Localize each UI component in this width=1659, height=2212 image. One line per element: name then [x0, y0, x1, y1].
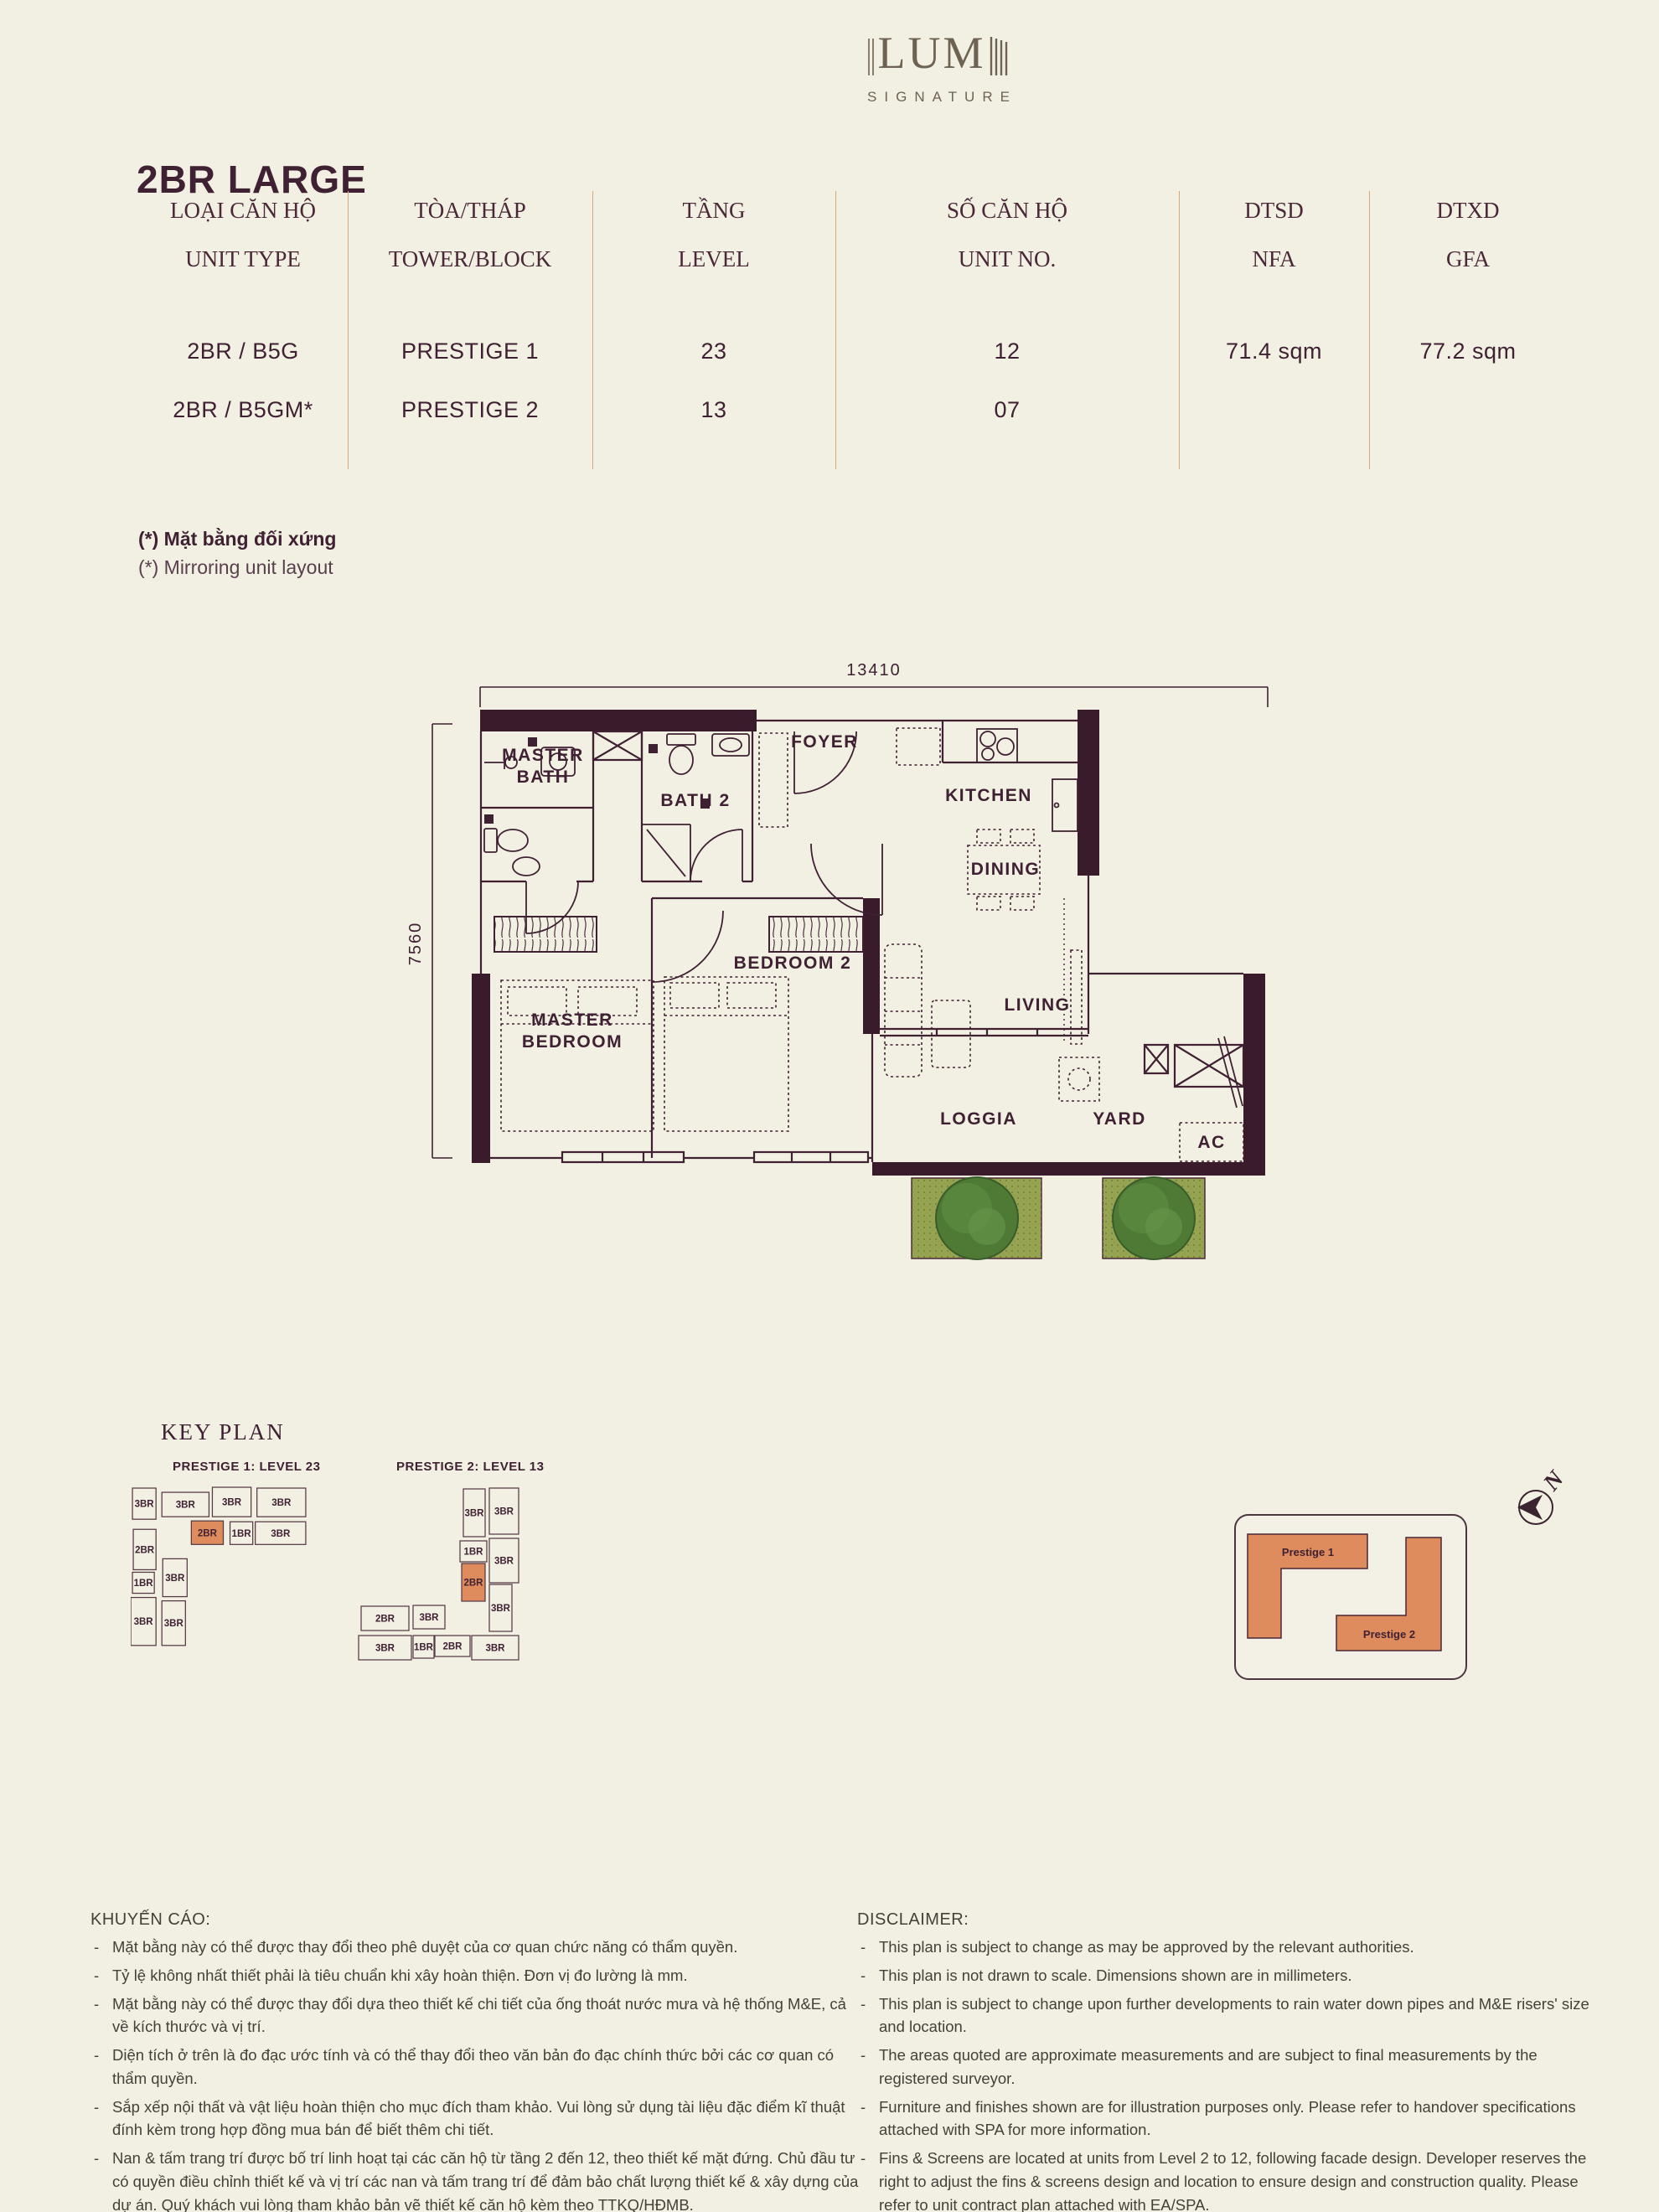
header-en: NFA: [1179, 246, 1369, 272]
planter-right: [1103, 1177, 1205, 1259]
key-plan-unit-label: 2BR: [135, 1545, 155, 1555]
svg-text:BATH: BATH: [517, 767, 570, 787]
column-nfa: DTSD NFA 71.4 sqm: [1179, 191, 1369, 471]
label-living: LIVING: [1004, 995, 1070, 1015]
key-plan-unit-label: 3BR: [464, 1509, 484, 1519]
disclaimer-item: Mặt bằng này có thể được thay đổi dựa th…: [90, 1992, 861, 2039]
cell: 23: [592, 339, 835, 364]
label-yard: YARD: [1093, 1109, 1146, 1129]
wardrobes: [494, 917, 863, 952]
dim-width: 13410: [846, 661, 902, 680]
lumi-logo-i-bars-icon: [989, 37, 1010, 75]
disclaimer-vi-list: Mặt bằng này có thể được thay đổi theo p…: [90, 1935, 861, 2212]
disclaimer-item: This plan is not drawn to scale. Dimensi…: [857, 1964, 1594, 1987]
label-foyer: FOYER: [791, 732, 858, 752]
column-gfa: DTXD GFA 77.2 sqm: [1369, 191, 1567, 471]
header-vi: SỐ CĂN HỘ: [835, 198, 1179, 224]
key-plan-prestige-1: 3BR3BR3BR3BR2BR1BR3BR2BR1BR3BR3BR3BR: [131, 1481, 312, 1683]
cell: 77.2 sqm: [1369, 339, 1567, 364]
lumi-logo: LUM SIGNATURE: [850, 30, 1026, 106]
key-plan-unit-label: 1BR: [463, 1548, 483, 1558]
key-plan-prestige-2: 3BR3BR1BR3BR2BR3BR2BR3BR3BR1BR2BR3BR: [357, 1485, 533, 1665]
header-vi: DTSD: [1179, 198, 1369, 224]
key-plan-unit-label: 2BR: [375, 1615, 395, 1625]
note-en: (*) Mirroring unit layout: [138, 553, 336, 581]
disclaimer-item: Sắp xếp nội thất và vật liệu hoàn thiện …: [90, 2096, 861, 2142]
key-plan-unit-label: 3BR: [494, 1557, 514, 1567]
floorplan-sheet: LUM SIGNATURE 2BR LARGE LOẠI CĂN HỘ UNIT…: [0, 0, 1659, 2212]
header-en: GFA: [1369, 246, 1567, 272]
header-vi: LOẠI CĂN HỘ: [138, 198, 348, 224]
dim-height: 7560: [406, 922, 425, 966]
disclaimer-en: DISCLAIMER: This plan is subject to chan…: [857, 1907, 1594, 2212]
svg-text:BEDROOM: BEDROOM: [522, 1032, 623, 1052]
key-plan-unit-label: 1BR: [414, 1643, 434, 1653]
key-plan-unit-label: 1BR: [232, 1529, 252, 1539]
shaft-boxes: [593, 731, 1243, 1087]
disclaimer-item: Nan & tấm trang trí được bố trí linh hoạ…: [90, 2147, 861, 2212]
key-plan-unit-label: 3BR: [419, 1613, 439, 1623]
lumi-logo-word: LUM: [850, 30, 1026, 75]
disclaimer-item: This plan is subject to change as may be…: [857, 1935, 1594, 1959]
disclaimer-item: Fins & Screens are located at units from…: [857, 2147, 1594, 2212]
column-unit-type: LOẠI CĂN HỘ UNIT TYPE 2BR / B5G 2BR / B5…: [138, 191, 348, 471]
site-label-prestige-2: Prestige 2: [1363, 1628, 1415, 1641]
cell: PRESTIGE 1: [348, 339, 592, 364]
column-level: TẦNG LEVEL 23 13: [592, 191, 835, 471]
logo-tagline: SIGNATURE: [850, 89, 1026, 106]
mirroring-note: (*) Mặt bằng đối xứng (*) Mirroring unit…: [138, 525, 336, 581]
label-master-bedroom: MASTER: [531, 1010, 613, 1030]
disclaimer-item: The areas quoted are approximate measure…: [857, 2044, 1594, 2091]
unit-info-table: LOẠI CĂN HỘ UNIT TYPE 2BR / B5G 2BR / B5…: [138, 191, 1567, 471]
column-tower: TÒA/THÁP TOWER/BLOCK PRESTIGE 1 PRESTIGE…: [348, 191, 592, 471]
key-plan-unit-label: 3BR: [485, 1644, 505, 1654]
label-kitchen: KITCHEN: [945, 786, 1032, 805]
key-plan-unit-label: 3BR: [491, 1604, 511, 1614]
disclaimer-item: Furniture and finishes shown are for ill…: [857, 2096, 1594, 2142]
disclaimer-item: This plan is subject to change upon furt…: [857, 1992, 1594, 2039]
site-label-prestige-1: Prestige 1: [1282, 1546, 1334, 1558]
label-bedroom2: BEDROOM 2: [734, 954, 852, 973]
cell: 12: [835, 339, 1179, 364]
cell: PRESTIGE 2: [348, 397, 592, 423]
disclaimer-vi-title: KHUYẾN CÁO:: [90, 1907, 861, 1932]
label-bath2: BATH 2: [660, 791, 730, 810]
header-vi: TÒA/THÁP: [348, 198, 592, 224]
disclaimer-item: Diện tích ở trên là đo đạc ước tính và c…: [90, 2044, 861, 2091]
site-plan: Prestige 1 Prestige 2: [1230, 1508, 1473, 1688]
disclaimer-en-title: DISCLAIMER:: [857, 1907, 1594, 1932]
label-dining: DINING: [971, 860, 1041, 879]
disclaimer-item: Tỷ lệ không nhất thiết phải là tiêu chuẩ…: [90, 1964, 861, 1987]
compass-icon: N: [1487, 1452, 1588, 1553]
windows: [562, 1029, 1088, 1162]
key-plan-unit-label: 3BR: [271, 1498, 292, 1508]
key-plan-unit-label: 3BR: [165, 1574, 185, 1584]
key-plan-unit-label: 3BR: [222, 1498, 242, 1508]
header-en: TOWER/BLOCK: [348, 246, 592, 272]
doors: [526, 731, 1243, 1108]
label-master-bath: MASTER: [502, 746, 584, 765]
logo-text: LUM: [878, 30, 986, 75]
key-plan-unit-label: 2BR: [463, 1579, 483, 1589]
cell: 07: [835, 397, 1179, 423]
disclaimer-vi: KHUYẾN CÁO: Mặt bằng này có thể được tha…: [90, 1907, 861, 2212]
disclaimer-en-list: This plan is subject to change as may be…: [857, 1935, 1594, 2212]
column-unit-no: SỐ CĂN HỘ UNIT NO. 12 07: [835, 191, 1179, 471]
note-vi: (*) Mặt bằng đối xứng: [138, 525, 336, 553]
cell: 71.4 sqm: [1179, 339, 1369, 364]
key-plan-unit-label: 3BR: [135, 1500, 155, 1510]
key-plan-unit-label: 3BR: [494, 1507, 514, 1517]
key-plan-unit-label: 3BR: [176, 1501, 196, 1511]
cell: 2BR / B5G: [138, 339, 348, 364]
key-plan-unit-label: 3BR: [164, 1619, 184, 1629]
header-en: UNIT NO.: [835, 246, 1179, 272]
key-plan-unit-label: 3BR: [375, 1644, 395, 1654]
cell: 13: [592, 397, 835, 423]
key-plan-unit-label: 1BR: [134, 1579, 154, 1589]
key-plan-title: KEY PLAN: [161, 1419, 285, 1445]
label-ac: AC: [1197, 1133, 1225, 1152]
key-plan-unit-label: 2BR: [198, 1528, 218, 1538]
label-loggia: LOGGIA: [940, 1109, 1017, 1129]
header-vi: DTXD: [1369, 198, 1567, 224]
key-plan-caption-2: PRESTIGE 2: LEVEL 13: [396, 1460, 544, 1474]
planter-left: [912, 1177, 1041, 1259]
header-en: UNIT TYPE: [138, 246, 348, 272]
key-plan-unit-label: 3BR: [134, 1617, 154, 1627]
key-plan-unit-label: 2BR: [442, 1642, 463, 1652]
header-vi: TẦNG: [592, 198, 835, 224]
key-plan-unit-label: 3BR: [271, 1529, 291, 1539]
cell: 2BR / B5GM*: [138, 397, 348, 423]
lumi-logo-left-bars-icon: [867, 39, 876, 75]
key-plan-caption-1: PRESTIGE 1: LEVEL 23: [173, 1460, 320, 1474]
header-en: LEVEL: [592, 246, 835, 272]
floor-plan-drawing: 13410 7560: [401, 622, 1322, 1300]
disclaimer-item: Mặt bằng này có thể được thay đổi theo p…: [90, 1935, 861, 1959]
